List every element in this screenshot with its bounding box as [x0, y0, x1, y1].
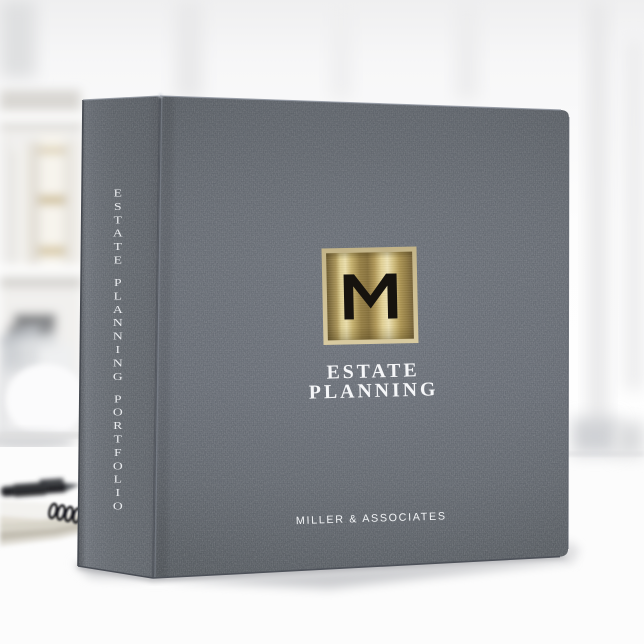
svg-text:P: P	[114, 276, 122, 288]
svg-text:F: F	[114, 446, 122, 458]
svg-text:O: O	[113, 500, 123, 512]
svg-text:O: O	[113, 460, 123, 472]
svg-text:N: N	[113, 317, 123, 329]
svg-text:G: G	[113, 370, 123, 382]
svg-text:P: P	[114, 393, 122, 405]
svg-text:L: L	[114, 290, 122, 302]
svg-text:T: T	[114, 433, 123, 445]
svg-text:L: L	[114, 473, 122, 485]
svg-text:R: R	[113, 419, 123, 431]
svg-text:O: O	[113, 406, 123, 418]
svg-text:E: E	[114, 254, 122, 266]
svg-text:E: E	[114, 187, 122, 199]
svg-text:S: S	[114, 200, 122, 212]
svg-text:I: I	[116, 343, 121, 355]
svg-text:T: T	[114, 214, 123, 226]
svg-text:N: N	[113, 330, 123, 342]
svg-text:A: A	[113, 303, 123, 315]
svg-text:T: T	[114, 240, 123, 252]
svg-text:PLANNING: PLANNING	[309, 378, 439, 403]
svg-text:N: N	[113, 357, 123, 369]
svg-text:A: A	[113, 227, 123, 239]
svg-text:I: I	[116, 486, 121, 498]
